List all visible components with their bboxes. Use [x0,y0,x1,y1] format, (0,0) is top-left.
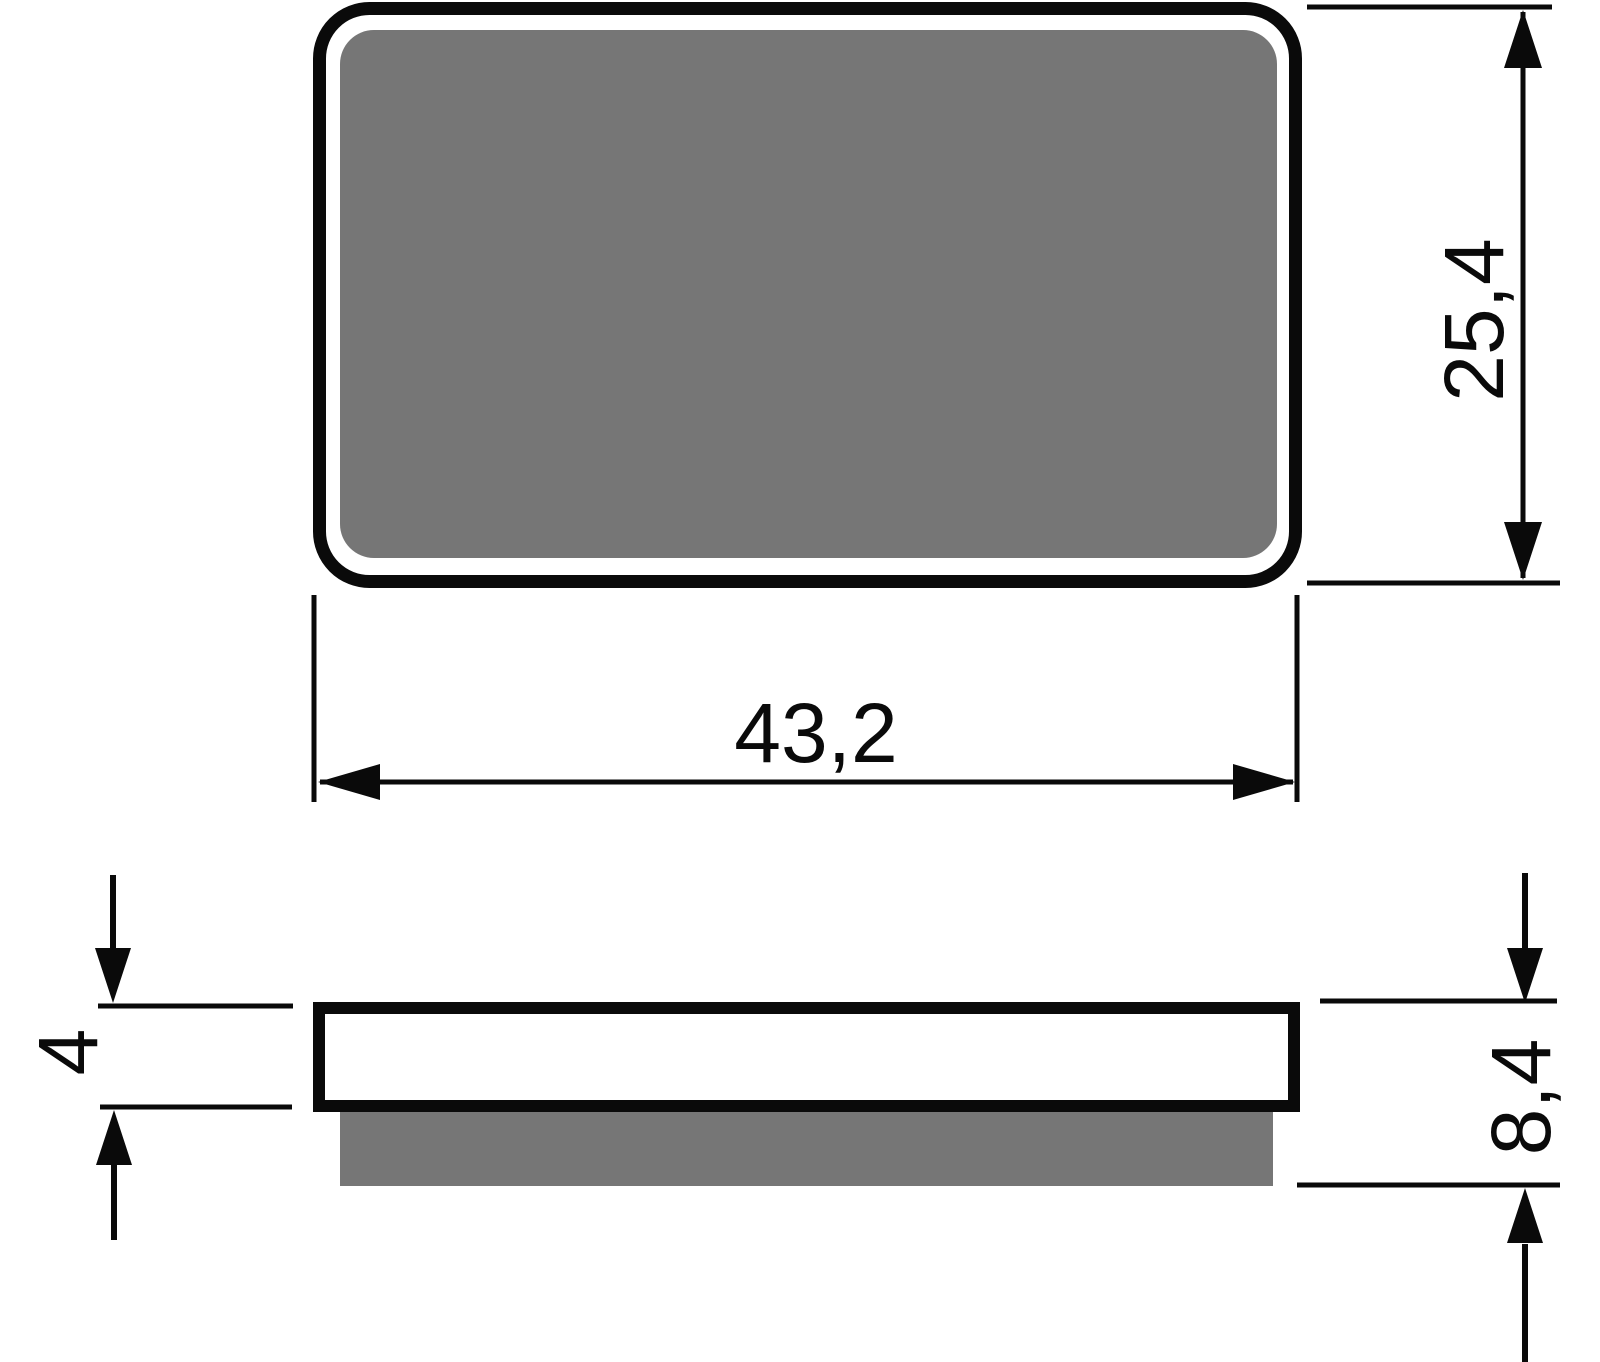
dim-height-label: 25,4 [1427,238,1521,402]
dim-height: 25,4 [1307,7,1560,583]
dim-backing-arrow-bottom [96,1110,132,1165]
dim-width-label: 43,2 [734,686,898,780]
top-view [320,9,1296,582]
dim-total-thickness-label: 8,4 [1474,1039,1568,1156]
side-view [319,1008,1294,1186]
dim-backing-thickness: 4 [21,875,293,1240]
dim-height-arrow-bottom [1504,522,1542,580]
dim-total-thickness: 8,4 [1297,873,1568,1362]
dim-width-arrow-right [1233,764,1295,800]
side-view-backing-plate [319,1008,1294,1106]
side-view-friction-pad [340,1112,1273,1186]
dim-backing-arrow-top [95,948,131,1003]
dim-total-arrow-top [1507,948,1543,1003]
dim-backing-thickness-label: 4 [21,1029,115,1076]
technical-drawing-canvas: 43,2 25,4 [0,0,1600,1362]
dim-width: 43,2 [314,595,1297,802]
dim-total-arrow-bottom [1507,1188,1543,1243]
brake-pad-dimension-drawing: 43,2 25,4 [0,0,1600,1362]
dim-width-arrow-left [318,764,380,800]
dim-height-arrow-top [1504,10,1542,68]
top-view-friction-surface [340,30,1277,558]
